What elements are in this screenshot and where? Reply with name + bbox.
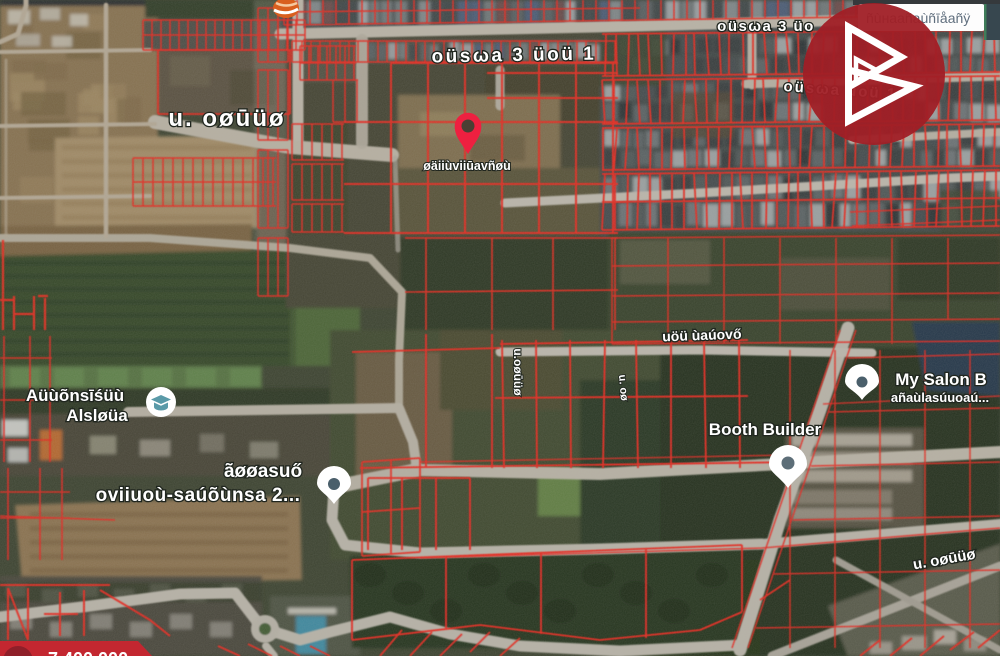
svg-text:u. oøūüø: u. oøūüø xyxy=(168,105,285,132)
svg-text:Aüùõnsīśüù: Aüùõnsīśüù xyxy=(26,386,124,405)
svg-text:ãøøasuő: ãøøasuő xyxy=(224,461,302,482)
svg-text:oüsωa 3 üoü 1: oüsωa 3 üoü 1 xyxy=(431,44,596,68)
svg-text:My Salon B: My Salon B xyxy=(895,370,987,389)
svg-text:oviiuoù-saúõùnsa 2...: oviiuoù-saúõùnsa 2... xyxy=(96,485,301,506)
svg-text:u.oøūüø: u.oøūüø xyxy=(511,348,525,396)
svg-text:7,400,000: 7,400,000 xyxy=(48,649,128,656)
svg-text:uöü ùaúovő: uöü ùaúovő xyxy=(662,326,742,345)
svg-text:Alsløüa: Alsløüa xyxy=(66,406,128,425)
svg-text:u. oø: u. oø xyxy=(616,374,630,401)
svg-text:oüsωa 3 üo: oüsωa 3 üo xyxy=(717,18,815,35)
svg-text:Booth Builder: Booth Builder xyxy=(709,420,822,439)
svg-text:øäiiùviiūavñøù: øäiiùviiūavñøù xyxy=(423,159,511,173)
svg-text:añaùlasúuoaú...: añaùlasúuoaú... xyxy=(891,390,989,405)
